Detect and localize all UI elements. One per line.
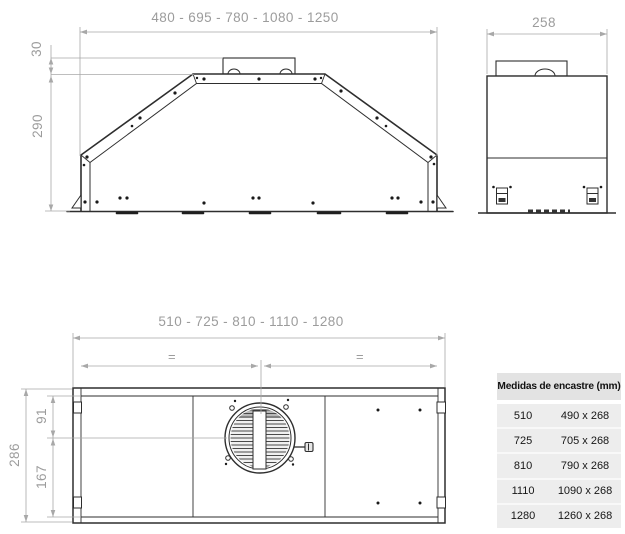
table-row: 1110 1090 x 268 bbox=[497, 478, 621, 503]
equal-spacing-right-label: = bbox=[340, 350, 380, 364]
equal-spacing-left-label: = bbox=[152, 350, 192, 364]
cell-cutout: 490 x 268 bbox=[549, 410, 621, 422]
cell-cutout: 790 x 268 bbox=[549, 460, 621, 472]
table-row: 510 490 x 268 bbox=[497, 404, 621, 427]
bottom-depth-dimension-label: 286 bbox=[8, 435, 22, 475]
fan-front-offset-label: 91 bbox=[35, 396, 49, 436]
table-row: 1280 1260 x 268 bbox=[497, 503, 621, 528]
bottom-view-drawing bbox=[73, 388, 446, 523]
technical-drawing-sheet: 480 - 695 - 780 - 1080 - 1250 30 290 258… bbox=[0, 0, 625, 534]
table-header: Medidas de encastre (mm) bbox=[497, 373, 621, 400]
front-width-dimension-label: 480 - 695 - 780 - 1080 - 1250 bbox=[95, 11, 395, 25]
side-view-drawing bbox=[478, 61, 616, 213]
cell-width: 1280 bbox=[497, 510, 549, 522]
front-view-drawing bbox=[67, 58, 453, 213]
cell-width: 510 bbox=[497, 410, 549, 422]
cell-width: 1110 bbox=[497, 485, 549, 497]
cell-cutout: 1260 x 268 bbox=[549, 510, 621, 522]
fan-rear-offset-label: 167 bbox=[35, 457, 49, 497]
cell-width: 810 bbox=[497, 460, 549, 472]
table-row: 810 790 x 268 bbox=[497, 452, 621, 477]
encastre-table: Medidas de encastre (mm) 510 490 x 268 7… bbox=[497, 373, 621, 528]
duct-height-dimension-label: 30 bbox=[30, 29, 44, 69]
cell-width: 725 bbox=[497, 435, 549, 447]
bottom-width-dimension-label: 510 - 725 - 810 - 1110 - 1280 bbox=[101, 315, 401, 329]
side-depth-dimension-label: 258 bbox=[494, 16, 594, 30]
cell-cutout: 705 x 268 bbox=[549, 435, 621, 447]
table-row: 725 705 x 268 bbox=[497, 427, 621, 452]
cell-cutout: 1090 x 268 bbox=[549, 485, 621, 497]
front-height-dimension-label: 290 bbox=[31, 106, 45, 146]
table-body: 510 490 x 268 725 705 x 268 810 790 x 26… bbox=[497, 404, 621, 528]
